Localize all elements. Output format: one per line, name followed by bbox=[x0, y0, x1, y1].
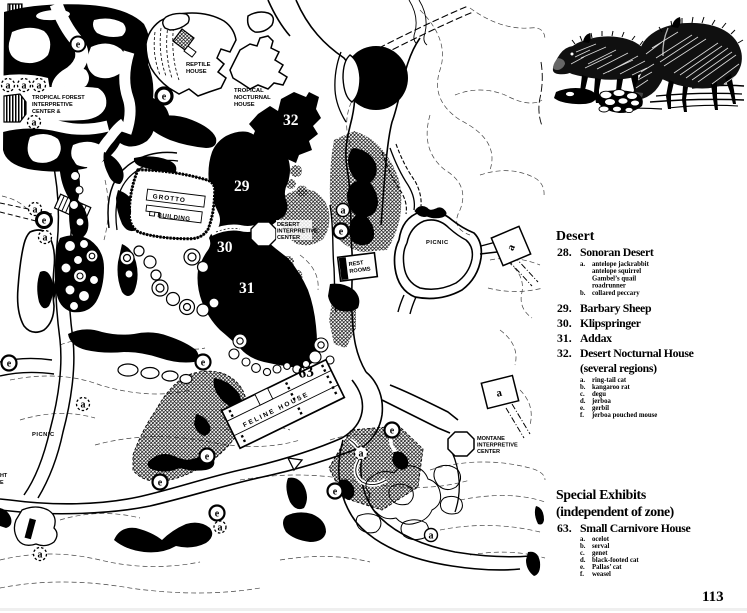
svg-text:ocelot: ocelot bbox=[592, 536, 610, 543]
svg-text:113: 113 bbox=[702, 589, 724, 605]
svg-text:e: e bbox=[76, 40, 81, 51]
svg-text:a.: a. bbox=[580, 536, 585, 543]
svg-text:NOCTURNAL: NOCTURNAL bbox=[234, 95, 271, 101]
svg-text:roadrunner: roadrunner bbox=[592, 283, 626, 290]
svg-text:Gambel’s quail: Gambel’s quail bbox=[592, 275, 636, 282]
svg-text:c.: c. bbox=[580, 550, 585, 557]
svg-text:black-footed cat: black-footed cat bbox=[592, 557, 639, 564]
svg-text:serval: serval bbox=[592, 543, 609, 550]
svg-text:e: e bbox=[162, 92, 167, 103]
svg-text:weasel: weasel bbox=[592, 571, 611, 578]
svg-text:degu: degu bbox=[592, 391, 606, 398]
svg-text:a.: a. bbox=[580, 377, 585, 384]
svg-text:Pallas’ cat: Pallas’ cat bbox=[592, 564, 622, 571]
svg-text:30: 30 bbox=[217, 239, 233, 256]
svg-text:MONTANE: MONTANE bbox=[477, 436, 505, 442]
svg-text:REPTILE: REPTILE bbox=[186, 62, 211, 68]
svg-text:antelope squirrel: antelope squirrel bbox=[592, 268, 641, 275]
svg-text:Sonoran Desert: Sonoran Desert bbox=[580, 245, 654, 259]
svg-text:collared peccary: collared peccary bbox=[592, 290, 640, 297]
svg-text:d.: d. bbox=[580, 398, 586, 405]
svg-text:e: e bbox=[205, 452, 210, 463]
svg-text:e.: e. bbox=[580, 564, 585, 571]
svg-text:Special Exhibits: Special Exhibits bbox=[556, 487, 647, 502]
svg-text:d.: d. bbox=[580, 557, 586, 564]
svg-text:HOUSE: HOUSE bbox=[234, 102, 255, 108]
svg-text:b.: b. bbox=[580, 290, 586, 297]
svg-text:gerbil: gerbil bbox=[592, 405, 609, 412]
svg-text:kangaroo rat: kangaroo rat bbox=[592, 384, 631, 391]
svg-text:DESERT: DESERT bbox=[277, 222, 300, 228]
svg-text:PICNIC: PICNIC bbox=[426, 240, 449, 246]
svg-text:29: 29 bbox=[234, 178, 250, 195]
svg-text:HOUSE: HOUSE bbox=[186, 69, 207, 75]
svg-text:(several regions): (several regions) bbox=[580, 361, 657, 375]
svg-text:TROPICAL FOREST: TROPICAL FOREST bbox=[32, 95, 85, 101]
svg-text:a: a bbox=[81, 400, 86, 411]
svg-text:e: e bbox=[339, 227, 344, 238]
svg-text:f.: f. bbox=[580, 412, 584, 419]
svg-text:a: a bbox=[6, 81, 11, 92]
svg-text:a: a bbox=[341, 206, 346, 217]
svg-text:jerboa pouched mouse: jerboa pouched mouse bbox=[591, 412, 657, 419]
svg-text:a: a bbox=[33, 205, 38, 216]
svg-text:Desert Nocturnal House: Desert Nocturnal House bbox=[580, 346, 694, 360]
svg-text:a: a bbox=[218, 523, 223, 534]
svg-text:e: e bbox=[7, 359, 12, 370]
svg-text:Desert: Desert bbox=[556, 228, 595, 243]
svg-text:e.: e. bbox=[580, 405, 585, 412]
svg-text:Addax: Addax bbox=[580, 331, 612, 345]
svg-text:b.: b. bbox=[580, 543, 586, 550]
svg-text:31: 31 bbox=[239, 280, 255, 297]
svg-text:a: a bbox=[38, 550, 43, 561]
svg-text:genet: genet bbox=[592, 550, 608, 557]
svg-text:(independent of zone): (independent of zone) bbox=[556, 504, 674, 520]
svg-text:31.: 31. bbox=[557, 331, 572, 345]
svg-text:INTERPRETIVE: INTERPRETIVE bbox=[32, 102, 73, 108]
svg-text:CENTER: CENTER bbox=[277, 235, 300, 241]
svg-text:c.: c. bbox=[580, 391, 585, 398]
svg-text:e: e bbox=[333, 487, 338, 498]
svg-text:TROPICAL: TROPICAL bbox=[234, 88, 264, 94]
svg-text:ring-tail cat: ring-tail cat bbox=[592, 377, 627, 384]
svg-text:PICNIC: PICNIC bbox=[32, 432, 55, 438]
svg-text:e: e bbox=[390, 426, 395, 437]
svg-text:Barbary Sheep: Barbary Sheep bbox=[580, 301, 652, 315]
svg-text:jerboa: jerboa bbox=[591, 398, 611, 405]
svg-text:E: E bbox=[0, 480, 4, 486]
svg-text:INTERPRETIVE: INTERPRETIVE bbox=[277, 229, 318, 235]
svg-text:a: a bbox=[22, 81, 27, 92]
svg-text:32: 32 bbox=[283, 112, 299, 129]
svg-text:a: a bbox=[429, 531, 434, 542]
svg-text:e: e bbox=[158, 478, 163, 489]
svg-text:f.: f. bbox=[580, 571, 584, 578]
svg-text:e: e bbox=[215, 509, 220, 520]
svg-text:63.: 63. bbox=[557, 521, 572, 535]
svg-text:e: e bbox=[201, 358, 206, 369]
svg-text:28.: 28. bbox=[557, 245, 572, 259]
svg-text:a: a bbox=[359, 449, 364, 460]
svg-text:63: 63 bbox=[297, 363, 315, 382]
svg-text:30.: 30. bbox=[557, 316, 572, 330]
svg-text:a: a bbox=[37, 81, 42, 92]
svg-text:CENTER: CENTER bbox=[477, 449, 500, 455]
svg-text:HT: HT bbox=[0, 473, 8, 479]
svg-text:CENTER &: CENTER & bbox=[32, 109, 61, 115]
svg-text:Klipspringer: Klipspringer bbox=[580, 316, 641, 330]
svg-text:b.: b. bbox=[580, 384, 586, 391]
svg-text:29.: 29. bbox=[557, 301, 572, 315]
svg-text:32.: 32. bbox=[557, 346, 572, 360]
svg-text:INTERPRETIVE: INTERPRETIVE bbox=[477, 443, 518, 449]
svg-text:antelope jackrabbit: antelope jackrabbit bbox=[592, 261, 650, 268]
svg-text:a.: a. bbox=[580, 261, 585, 268]
svg-text:a: a bbox=[32, 118, 37, 129]
svg-text:e: e bbox=[42, 216, 47, 227]
svg-text:a: a bbox=[43, 233, 48, 244]
svg-text:Small Carnivore House: Small Carnivore House bbox=[580, 521, 691, 535]
